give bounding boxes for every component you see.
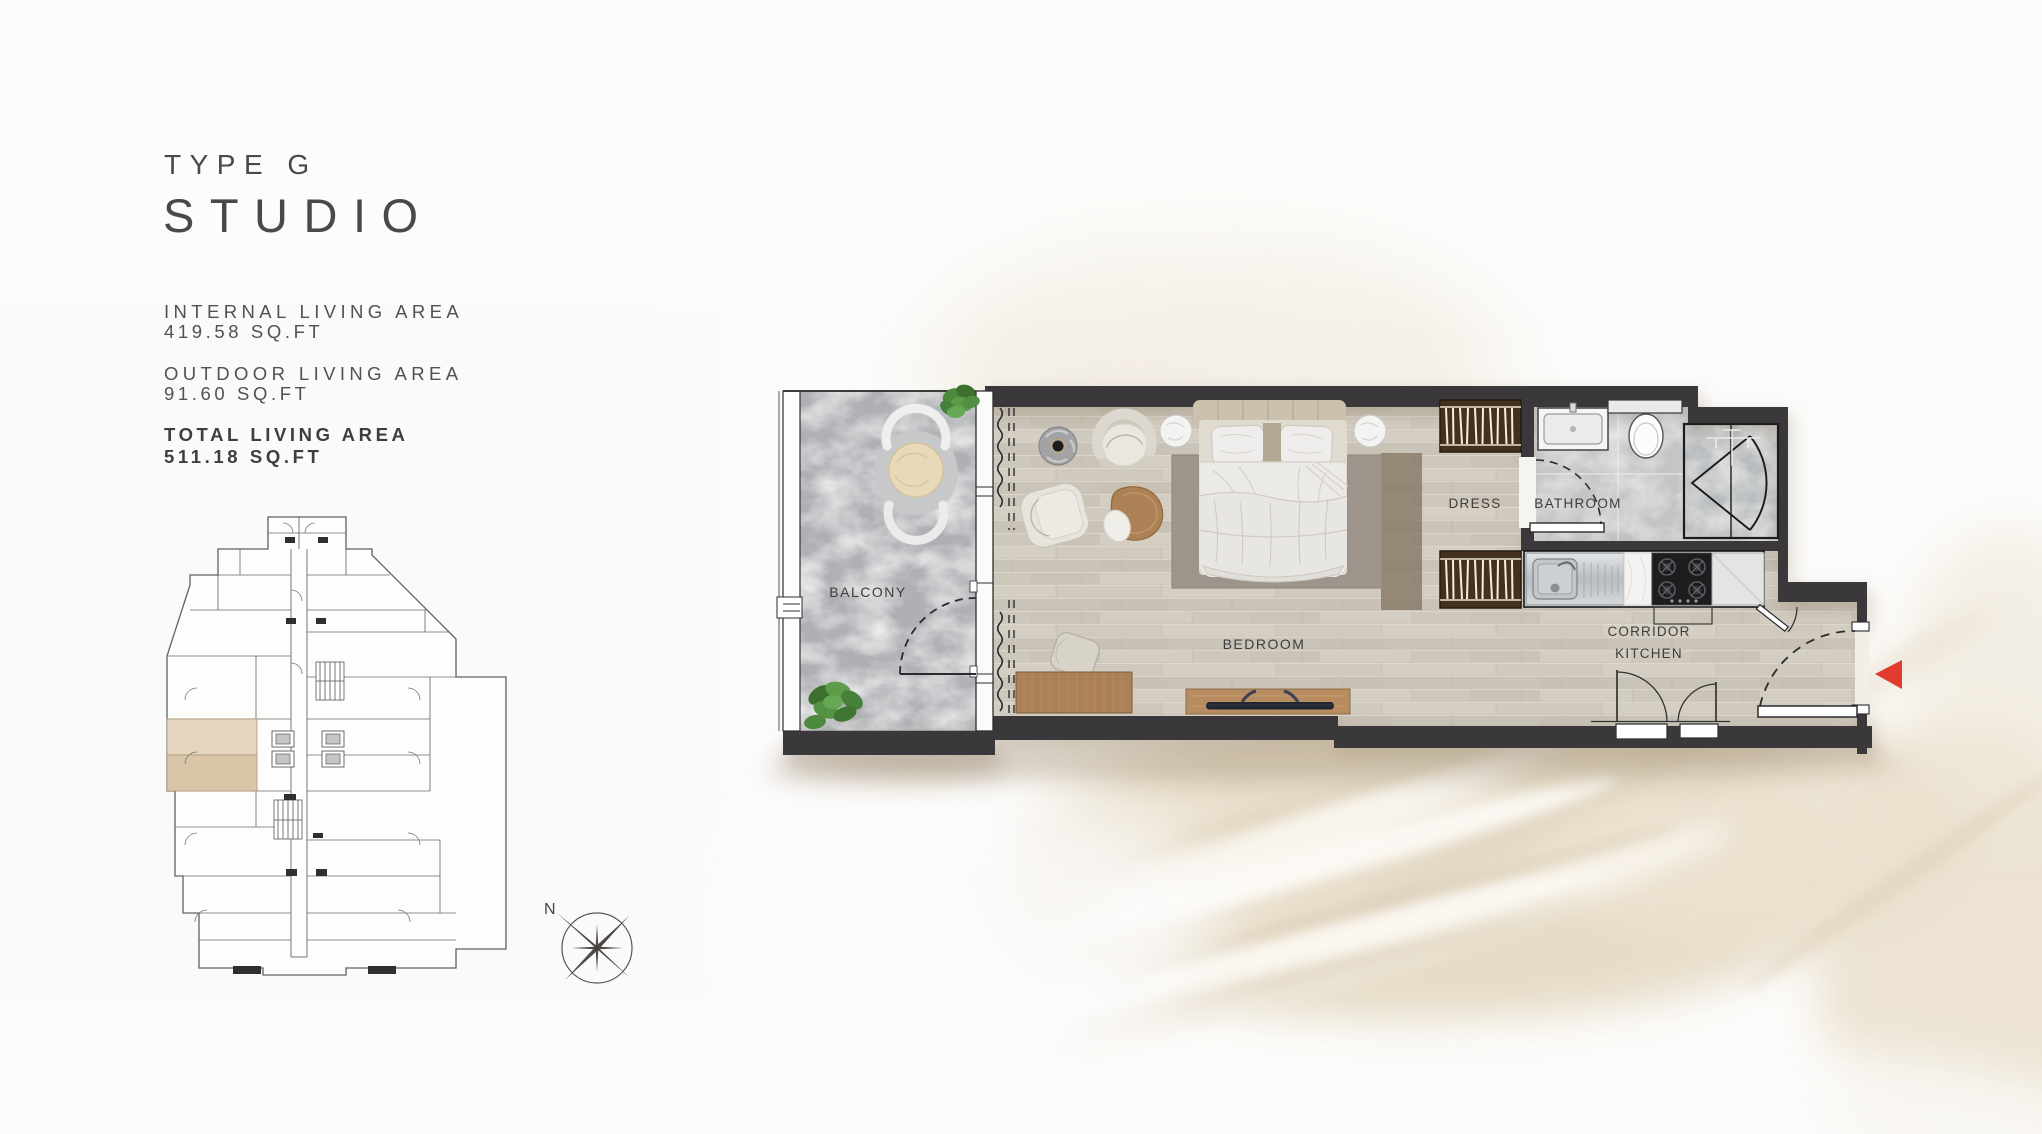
svg-text:TOTAL LIVING AREA: TOTAL LIVING AREA	[164, 424, 409, 445]
svg-text:OUTDOOR LIVING AREA: OUTDOOR LIVING AREA	[164, 363, 462, 384]
svg-text:DRESS: DRESS	[1448, 496, 1501, 511]
svg-text:BATHROOM: BATHROOM	[1534, 496, 1621, 511]
svg-text:91.60 SQ.FT: 91.60 SQ.FT	[164, 383, 310, 404]
svg-text:STUDIO: STUDIO	[163, 189, 434, 242]
svg-text:KITCHEN: KITCHEN	[1615, 646, 1683, 661]
svg-text:BALCONY: BALCONY	[829, 584, 906, 600]
svg-text:INTERNAL LIVING AREA: INTERNAL LIVING AREA	[164, 301, 463, 322]
svg-text:511.18 SQ.FT: 511.18 SQ.FT	[164, 446, 322, 467]
svg-text:TYPE G: TYPE G	[164, 149, 318, 180]
svg-text:CORRIDOR: CORRIDOR	[1607, 624, 1690, 639]
svg-text:BEDROOM: BEDROOM	[1223, 636, 1306, 652]
svg-text:419.58 SQ.FT: 419.58 SQ.FT	[164, 321, 323, 342]
svg-text:N: N	[544, 901, 556, 918]
